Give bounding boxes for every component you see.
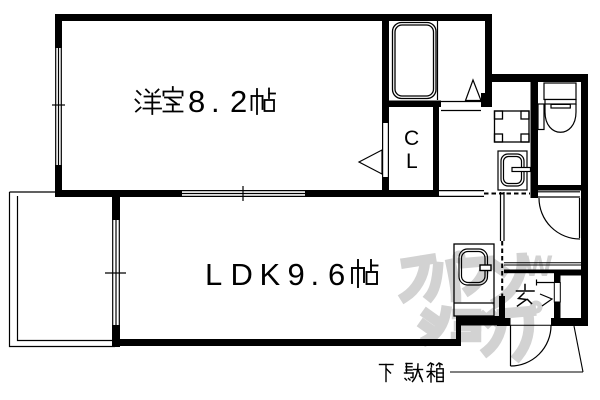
svg-text:2: 2 — [230, 84, 247, 119]
svg-text:.: . — [211, 84, 220, 119]
svg-text:9: 9 — [288, 257, 305, 292]
svg-text:W: W — [524, 250, 553, 283]
svg-text:.: . — [311, 257, 320, 292]
svg-text:L: L — [205, 257, 222, 292]
svg-text:K: K — [260, 257, 281, 292]
svg-text:8: 8 — [188, 84, 205, 119]
svg-text:6: 6 — [328, 257, 345, 292]
svg-text:C: C — [404, 127, 419, 150]
svg-text:L: L — [406, 150, 418, 173]
svg-text:D: D — [231, 257, 253, 292]
